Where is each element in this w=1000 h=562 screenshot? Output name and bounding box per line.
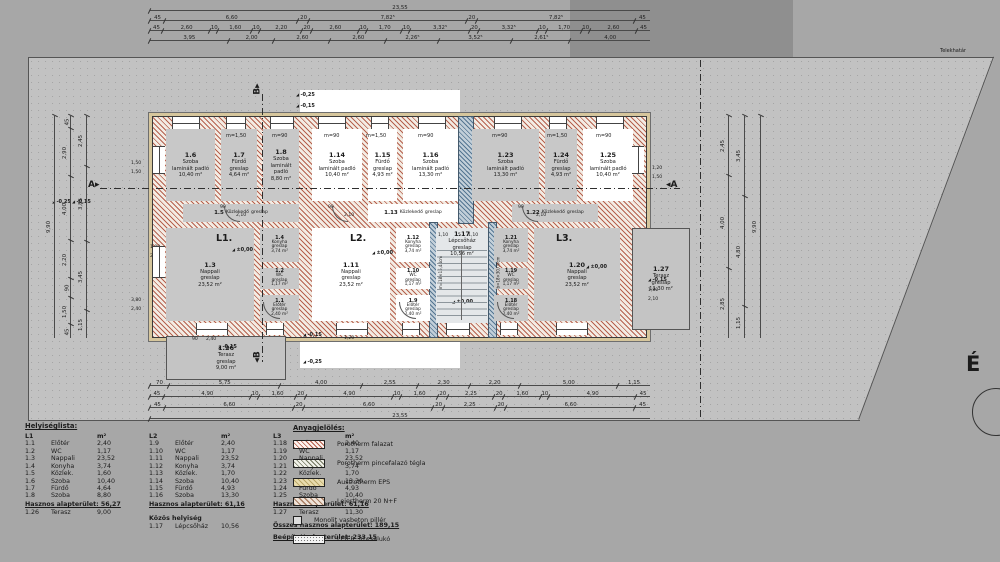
room-1.23: 1.23Szobalaminált padló13,30 m² xyxy=(472,129,539,201)
row-name: Szoba xyxy=(51,492,93,499)
row-area: 23,52 xyxy=(221,455,247,462)
row-name: Közlek. xyxy=(175,470,217,477)
boundary-label: Telekhatár xyxy=(940,48,966,54)
row-name: Lépcsőház xyxy=(175,523,217,530)
level-marker: ±0,00 xyxy=(232,247,253,253)
row-name: Terasz xyxy=(51,509,93,516)
row-id: 1.21 xyxy=(273,463,295,470)
room-1.4: 1.4Konyhagreslap3,74 m² xyxy=(260,228,299,262)
dim-segment: 4,00 xyxy=(280,377,361,386)
dim-segment: 5,00 xyxy=(520,377,618,386)
row-id: 1.5 xyxy=(25,470,47,477)
window-height-label: m=90 xyxy=(272,133,287,139)
row-id: 1.11 xyxy=(149,455,171,462)
window-symbol xyxy=(336,323,368,335)
dim-segment: 45 xyxy=(62,325,71,338)
room-id: 1.6 xyxy=(185,151,197,159)
legend-label: Monolit vasbeton pillér xyxy=(314,517,386,524)
inner-dimension: 2,40 xyxy=(131,307,141,312)
row-area: 2,40 xyxy=(221,440,247,447)
room-id: 1.3 xyxy=(204,261,216,269)
dim-segment: 1,60 xyxy=(259,388,296,397)
floor-plan-canvas: Telekhatár 1.6Szobalaminált padló10,40 m… xyxy=(0,0,1000,562)
row-area: 3,74 xyxy=(221,463,247,470)
room-id: 1.11 xyxy=(343,261,359,269)
room-area: 10,40 m² xyxy=(179,172,203,179)
window-symbol xyxy=(226,117,246,129)
room-area: 10,40 m² xyxy=(325,172,349,179)
section-marker-b-top: B▸ xyxy=(253,83,263,94)
room-1.8: 1.8Szobalaminált padló8,80 m² xyxy=(263,129,299,201)
dim-chain-bottom-3: 456,60206,60202,25206,6045 xyxy=(150,399,650,408)
section-marker-a-left: A▸ xyxy=(88,180,100,190)
dim-segment: 2,30 xyxy=(418,377,470,386)
inner-dimension: 1,20 xyxy=(344,336,354,341)
dim-segment: 3,45 xyxy=(736,116,745,197)
room-id: 1.23 xyxy=(497,151,513,159)
row-id: 1.10 xyxy=(149,448,171,455)
dim-segment: 45 xyxy=(635,12,650,21)
inner-dimension: 1,50 xyxy=(131,161,141,166)
legend-item: Porotherm falazat xyxy=(293,440,426,448)
room-list-grid: L1m²1.1Előtér2,401.2WC1,171.3Nappali23,5… xyxy=(25,433,123,500)
dim-segment: 2,60 xyxy=(590,22,637,31)
row-id: 1.16 xyxy=(149,492,171,499)
extra-title: Közös helyiség xyxy=(149,515,247,522)
window-symbol xyxy=(556,323,588,335)
dim-segment: 45 xyxy=(150,388,164,397)
row-area: 2,40 xyxy=(97,440,123,447)
row-name: Fürdő xyxy=(175,485,217,492)
room-1.14: 1.14Szobalaminált padló10,40 m² xyxy=(312,129,362,201)
dim-segment: 4,80 xyxy=(736,197,745,307)
apartment-label-L3: L3. xyxy=(556,233,572,244)
room-area: 3,74 m² xyxy=(503,250,520,255)
dim-segment: 9,90 xyxy=(46,116,55,338)
unit-header: m² xyxy=(97,433,123,440)
dim-segment: 23,55 xyxy=(150,2,650,11)
room-id: 1.5 xyxy=(214,210,224,217)
section-line-a xyxy=(100,188,680,189)
room-1.2: 1.2WCgreslap1,17 m² xyxy=(260,268,299,289)
eps-swatch xyxy=(293,478,325,487)
zsaluko-swatch xyxy=(293,535,325,544)
row-area: 10,40 xyxy=(97,478,123,485)
row-name: Nappali xyxy=(51,455,93,462)
room-area: 1,17 m² xyxy=(503,283,520,288)
room-id: 1.25 xyxy=(600,151,616,159)
level-marker: ±0,00 xyxy=(372,250,393,256)
row-name: WC xyxy=(175,448,217,455)
legend-item: Leiertherm 20 N+F xyxy=(293,497,426,505)
room-id: 1.20 xyxy=(569,261,585,269)
dim-segment: 4,90 xyxy=(164,388,251,397)
level-marker: ±0,00 xyxy=(586,264,607,270)
dim-segment: 70 xyxy=(150,377,169,386)
row-area: 9,00 xyxy=(97,509,123,516)
dim-segment: 2,00 xyxy=(229,32,275,41)
porotherm-swatch xyxy=(293,440,325,449)
level-marker: -0,15 xyxy=(303,332,322,338)
room-id: 1.24 xyxy=(553,151,569,159)
row-area: 23,52 xyxy=(97,455,123,462)
room-area: 4,93 m² xyxy=(372,172,392,179)
room-area: 1,17 m² xyxy=(271,283,288,288)
window-symbol xyxy=(402,323,420,335)
dim-segment: 7,82⁵ xyxy=(309,12,467,21)
dim-segment: 45 xyxy=(150,12,165,21)
inner-dimension: 2,10 xyxy=(648,297,658,302)
row-area: 3,74 xyxy=(97,463,123,470)
room-1.25: 1.25Szobalaminált padló10,40 m² xyxy=(583,129,633,201)
legend-item: LEIER 30 zsalukó xyxy=(293,535,426,543)
level-marker: -0,15 xyxy=(218,344,237,350)
row-id: 1.27 xyxy=(273,509,295,516)
dim-segment: 2,25 xyxy=(448,388,495,397)
unit-header: m² xyxy=(221,433,247,440)
row-area: 13,30 xyxy=(221,492,247,499)
dim-segment: 5,75 xyxy=(169,377,280,386)
row-id: 1.18 xyxy=(273,440,295,447)
room-name: Közlekedő xyxy=(400,210,423,216)
room-area: 9,00 m² xyxy=(216,365,236,372)
dim-segment: 4,00 xyxy=(570,32,650,41)
inner-dimension: 1,50 xyxy=(131,170,141,175)
dim-segment: 2,20 xyxy=(470,377,520,386)
window-symbol xyxy=(500,323,518,335)
row-id: 1.13 xyxy=(149,470,171,477)
row-area: 4,93 xyxy=(221,485,247,492)
dim-segment: 3,52⁵ xyxy=(439,32,513,41)
room-id: 1.15 xyxy=(374,151,390,159)
dim-chain-bottom-1: 705,754,002,552,302,205,001,15 xyxy=(150,377,650,386)
level-marker: -0,25 xyxy=(303,359,322,365)
dim-chain-right-3: 9,90 xyxy=(752,116,761,338)
room-area: 10,40 m² xyxy=(596,172,620,179)
dim-segment: 7,82⁵ xyxy=(477,12,635,21)
dim-segment: 45 xyxy=(150,22,163,31)
dim-chain-right-2: 3,454,801,15 xyxy=(736,116,745,338)
inner-dimension: 2,40 xyxy=(206,337,216,342)
dim-segment: 2,20 xyxy=(260,22,302,31)
dim-segment: 90 xyxy=(62,279,71,298)
dim-segment: 1,60 xyxy=(401,388,438,397)
room-area: 13,30 m² xyxy=(494,172,518,179)
room-1.26: 1.26Teraszgreslap9,00 m² xyxy=(166,336,286,380)
inner-dimension: 3,80 xyxy=(131,298,141,303)
pince-swatch xyxy=(293,459,325,468)
dim-segment: 1,70 xyxy=(367,22,402,31)
room-id: 1.14 xyxy=(329,151,345,159)
row-name: Konyha xyxy=(51,463,93,470)
dim-segment: 9,90 xyxy=(752,116,761,338)
row-id: 1.3 xyxy=(25,455,47,462)
dim-segment: 2,55 xyxy=(362,377,418,386)
dim-segment: 2,90 xyxy=(62,129,71,177)
dim-segment: 1,70 xyxy=(547,22,582,31)
north-label: É xyxy=(966,352,980,376)
reference-line xyxy=(700,60,701,420)
row-area: 10,40 xyxy=(221,478,247,485)
row-area: 1,17 xyxy=(221,448,247,455)
window-height-label: m=90 xyxy=(596,133,611,139)
section-line-b xyxy=(262,94,263,362)
dim-chain-bottom-2: 454,90101,60204,90101,60202,25201,60104,… xyxy=(150,388,650,397)
dim-segment: 1,15 xyxy=(618,377,650,386)
row-id: 1.4 xyxy=(25,463,47,470)
window-height-label: m=1,50 xyxy=(547,133,567,139)
dim-segment: 45 xyxy=(635,399,650,408)
inner-dimension: 90 xyxy=(192,337,198,342)
extra-grid: 1.17Lépcsőház10,56 xyxy=(149,523,247,530)
dim-segment: 2,26⁵ xyxy=(386,32,438,41)
window-height-label: m=1,50 xyxy=(226,133,246,139)
room-list-group-L2: L2m²1.9Előtér2,401.10WC1,171.11Nappali23… xyxy=(149,433,247,541)
row-area: 1,60 xyxy=(97,470,123,477)
dim-segment: 2,85 xyxy=(720,269,729,338)
window-symbol xyxy=(446,323,470,335)
room-area: 13,30 m² xyxy=(419,172,443,179)
dim-segment: 1,60 xyxy=(504,388,541,397)
row-name: WC xyxy=(51,448,93,455)
row-id: 1.24 xyxy=(273,485,295,492)
dim-segment: 3,85 xyxy=(78,167,87,243)
dim-segment: 1,15 xyxy=(736,307,745,338)
window-symbol xyxy=(153,146,165,174)
legend-item: Austrotherm EPS xyxy=(293,478,426,486)
window-height-label: m=90 xyxy=(324,133,339,139)
legend-label: Austrotherm EPS xyxy=(337,479,390,486)
row-id: 1.20 xyxy=(273,455,295,462)
boundary-line-left xyxy=(28,57,29,421)
row-name: Konyha xyxy=(175,463,217,470)
row-name: Előtér xyxy=(175,440,217,447)
room-floor: laminált padló xyxy=(263,163,299,176)
room-list-grid: L2m²1.9Előtér2,401.10WC1,171.11Nappali23… xyxy=(149,433,247,500)
stair-note: b=18×30,00cm xyxy=(495,257,500,289)
row-area: 10,56 xyxy=(221,523,247,530)
window-height-label: m=90 xyxy=(492,133,507,139)
room-area: 23,52 m² xyxy=(339,282,363,289)
dim-chain-left-1: 9,90 xyxy=(46,116,55,338)
section-marker-b-bottom: ◂B xyxy=(253,351,263,362)
boundary-line-top xyxy=(28,57,994,58)
room-area: 3,74 m² xyxy=(405,250,422,255)
row-name: Közlek. xyxy=(51,470,93,477)
stair-divider xyxy=(461,250,462,320)
dim-segment: 6,60 xyxy=(304,399,433,408)
dim-segment: 1,15 xyxy=(78,311,87,338)
legend-label: Leiertherm 20 N+F xyxy=(337,498,397,505)
room-area: 23,52 m² xyxy=(565,282,589,289)
window-symbol xyxy=(266,323,284,335)
row-area: 1,70 xyxy=(221,470,247,477)
legend-label: Porotherm pincefalazó tégla xyxy=(337,460,426,467)
north-symbol-circle xyxy=(972,388,1000,436)
window-symbol xyxy=(196,323,228,335)
row-id: 1.25 xyxy=(273,492,295,499)
row-id: 1.14 xyxy=(149,478,171,485)
room-1.12: 1.12Konyhagreslap3,74 m² xyxy=(396,228,430,262)
dim-segment: 2,20 xyxy=(62,241,71,279)
legend-item: Monolit vasbeton pillér xyxy=(293,516,426,524)
boundary-line-bottom xyxy=(28,420,860,421)
dim-segment: 4,90 xyxy=(306,388,393,397)
room-area: 4,93 m² xyxy=(551,172,571,179)
level-marker: -0,15 xyxy=(296,103,315,109)
room-area: 3,74 m² xyxy=(271,250,288,255)
dim-segment: 45 xyxy=(636,388,650,397)
row-id: 1.15 xyxy=(149,485,171,492)
room-id: 1.16 xyxy=(422,151,438,159)
room-1.24: 1.24Fürdőgreslap4,93 m² xyxy=(545,129,577,201)
dim-segment: 2,60 xyxy=(312,22,359,31)
dim-segment: 45 xyxy=(150,399,165,408)
room-1.16: 1.16Szobalaminált padló13,30 m² xyxy=(403,129,458,201)
row-id: 1.2 xyxy=(25,448,47,455)
row-name: Szoba xyxy=(51,478,93,485)
inner-dimension: 5 xyxy=(458,233,461,238)
dim-segment: 4,00 xyxy=(62,177,71,241)
level-marker: -0,25 xyxy=(296,92,315,98)
window-symbol xyxy=(494,117,522,129)
dim-chain-top-4: 3,952,002,602,602,26⁵3,52⁵2,61⁵4,00 xyxy=(150,32,650,41)
pillar-swatch xyxy=(293,516,302,525)
room-floor: greslap xyxy=(425,210,442,216)
row-area: 1,17 xyxy=(97,448,123,455)
inner-dimension: 1,20 xyxy=(652,166,662,171)
inner-dimension: 1,10 xyxy=(438,233,448,238)
row-area: 4,64 xyxy=(97,485,123,492)
dim-chain-top-1: 23,55 xyxy=(150,2,650,11)
room-id: 1.13 xyxy=(384,210,398,217)
material-legend: Anyagjelölés: Porotherm falazatPorotherm… xyxy=(293,424,426,554)
room-1.6: 1.6Szobalaminált padló10,40 m² xyxy=(166,129,215,201)
room-id: 1.7 xyxy=(233,151,245,159)
legend-label: Porotherm falazat xyxy=(337,441,393,448)
window-symbol xyxy=(318,117,346,129)
dim-segment: 3,45 xyxy=(78,242,87,311)
dim-segment: 3,95 xyxy=(150,32,229,41)
group-header: L3 xyxy=(273,433,295,440)
room-id: 1.8 xyxy=(275,148,287,156)
level-marker: -0,15 xyxy=(648,277,667,283)
legend-title: Anyagjelölés: xyxy=(293,424,426,432)
row-id: 1.22 xyxy=(273,470,295,477)
window-height-label: m=1,50 xyxy=(366,133,386,139)
window-height-label: m=90 xyxy=(418,133,433,139)
apartment-label-L1: L1. xyxy=(216,233,232,244)
row-area: 8,80 xyxy=(97,492,123,499)
stair-treads xyxy=(437,250,487,320)
room-1.13: 1.13Közlekedőgreslap xyxy=(368,204,458,222)
dim-segment: 2,60 xyxy=(274,32,330,41)
room-area: 8,80 m² xyxy=(271,176,291,183)
row-name: Szoba xyxy=(175,478,217,485)
window-symbol xyxy=(153,246,165,278)
room-area: 1,17 m² xyxy=(405,283,422,288)
dim-segment: 6,60 xyxy=(165,12,298,21)
row-id: 1.12 xyxy=(149,463,171,470)
dim-chain-left-3: 2,453,853,451,15 xyxy=(78,116,87,338)
row-id: 1.8 xyxy=(25,492,47,499)
room-list-group-L1: L1m²1.1Előtér2,401.2WC1,171.3Nappali23,5… xyxy=(25,433,123,541)
extra-grid: 1.26Terasz9,00 xyxy=(25,509,123,516)
window-symbol xyxy=(371,117,389,129)
dim-chain-top-2: 456,60207,82⁵207,82⁵45 xyxy=(150,12,650,21)
dim-segment: 1,60 xyxy=(218,22,252,31)
dim-chain-left-2: 452,904,002,20901,5045 xyxy=(62,116,71,338)
dim-segment: 2,45 xyxy=(720,116,729,176)
inner-dimension: 1,80 xyxy=(648,288,658,293)
window-symbol xyxy=(172,117,200,129)
room-1.15: 1.15Fürdőgreslap4,93 m² xyxy=(368,129,397,201)
row-id: 1.23 xyxy=(273,478,295,485)
dim-segment: 2,60 xyxy=(330,32,386,41)
dim-segment: 2,61⁵ xyxy=(512,32,570,41)
group-header: L2 xyxy=(149,433,171,440)
room-area: 23,52 m² xyxy=(198,282,222,289)
room-id: 1.27 xyxy=(653,265,669,273)
dim-segment: 3,32⁵ xyxy=(410,22,469,31)
section-marker-a-right: ◂A xyxy=(666,180,678,190)
room-1.7: 1.7Fürdőgreslap4,64 m² xyxy=(221,129,257,201)
row-id: 1.9 xyxy=(149,440,171,447)
room-floor: greslap xyxy=(251,210,268,216)
legend-label: LEIER 30 zsalukó xyxy=(337,536,390,543)
dim-segment: 3,32⁵ xyxy=(479,22,538,31)
dim-segment: 45 xyxy=(637,22,650,31)
dim-segment: 1,50 xyxy=(62,298,71,326)
dim-segment: 4,00 xyxy=(720,176,729,270)
dim-segment: 2,25 xyxy=(444,399,496,408)
apartment-label-L2: L2. xyxy=(350,233,366,244)
group-header: L1 xyxy=(25,433,47,440)
dim-segment: 2,45 xyxy=(78,116,87,167)
dim-segment: 6,60 xyxy=(165,399,294,408)
dim-chain-bottom-4: 23,55 xyxy=(150,410,650,419)
row-id: 1.1 xyxy=(25,440,47,447)
row-name: Előtér xyxy=(51,440,93,447)
room-1.3: 1.3Nappaligreslap23,52 m² xyxy=(166,228,254,321)
window-symbol xyxy=(549,117,567,129)
room-area: 4,64 m² xyxy=(229,172,249,179)
row-id: 1.17 xyxy=(149,523,171,530)
row-id: 1.19 xyxy=(273,448,295,455)
window-symbol xyxy=(632,146,644,174)
dim-segment: 2,60 xyxy=(163,22,210,31)
leiertherm-swatch xyxy=(293,497,325,506)
inner-dimension: 1,50 xyxy=(652,175,662,180)
row-name: Szoba xyxy=(175,492,217,499)
window-symbol xyxy=(418,117,446,129)
row-id: 1.6 xyxy=(25,478,47,485)
window-symbol xyxy=(596,117,624,129)
room-floor: greslap xyxy=(567,210,584,216)
dim-segment: 6,60 xyxy=(506,399,635,408)
group-footer: Hasznos alapterület: 61,16 xyxy=(149,501,247,508)
dim-segment: 4,90 xyxy=(549,388,636,397)
room-1.10: 1.10WCgreslap1,17 m² xyxy=(396,268,430,289)
legend-item: Porotherm pincefalazó tégla xyxy=(293,459,426,467)
dim-chain-top-3: 452,60101,60102,20202,60101,70103,32⁵203… xyxy=(150,22,650,31)
group-footer: Hasznos alapterület: 56,27 xyxy=(25,501,123,508)
row-name: Nappali xyxy=(175,455,217,462)
inner-dimension: 1,10 xyxy=(468,233,478,238)
dim-chain-right-1: 2,454,002,85 xyxy=(720,116,729,338)
dim-segment: 23,55 xyxy=(150,410,650,419)
row-id: 1.7 xyxy=(25,485,47,492)
